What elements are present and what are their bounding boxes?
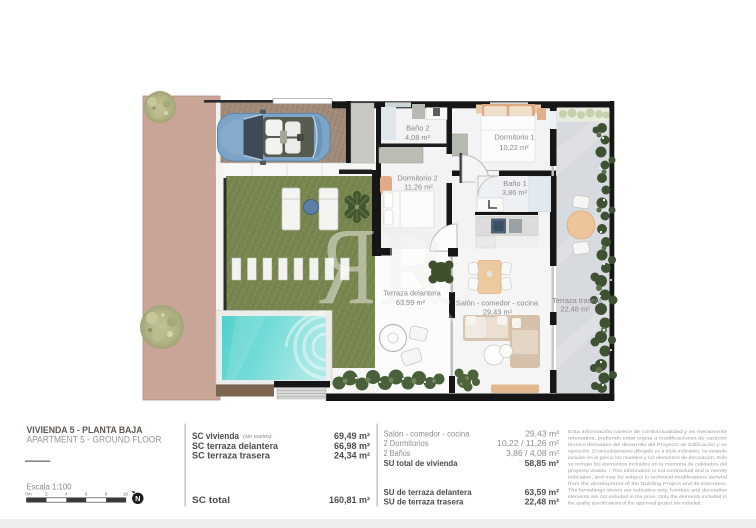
svg-text:Salón - comedor - cocina: Salón - comedor - cocina bbox=[384, 428, 470, 438]
svg-text:SC terraza delantera: SC terraza delantera bbox=[192, 441, 279, 451]
svg-text:Escala 1:100: Escala 1:100 bbox=[27, 483, 73, 492]
svg-text:2 Dormitorios: 2 Dormitorios bbox=[384, 438, 429, 448]
svg-text:Terraza delantera: Terraza delantera bbox=[383, 289, 441, 298]
svg-text:2 Baños: 2 Baños bbox=[384, 448, 411, 458]
svg-text:4,08 m²: 4,08 m² bbox=[405, 133, 431, 142]
svg-text:Dormitorio 1: Dormitorio 1 bbox=[494, 133, 534, 142]
svg-text:Baño 2: Baño 2 bbox=[406, 124, 429, 133]
svg-text:SU de terraza trasera: SU de terraza trasera bbox=[384, 496, 464, 506]
svg-text:63,59 m²: 63,59 m² bbox=[525, 487, 560, 497]
svg-text:29,43 m²: 29,43 m² bbox=[483, 308, 513, 317]
svg-text:SU total de vivienda: SU total de vivienda bbox=[384, 458, 458, 468]
svg-text:0m: 0m bbox=[25, 492, 32, 497]
svg-text:se incluye los elementos inclu: se incluye los elementos incluidos en la… bbox=[568, 462, 727, 468]
svg-text:22,48 m²: 22,48 m² bbox=[560, 305, 590, 314]
svg-text:(sin vuelos): (sin vuelos) bbox=[243, 434, 272, 440]
svg-text:Baño 1: Baño 1 bbox=[503, 179, 526, 188]
svg-text:incluido en el precio los mueb: incluido en el precio los muebles y los … bbox=[568, 455, 727, 461]
svg-text:10,22 / 11,26 m²: 10,22 / 11,26 m² bbox=[497, 438, 559, 448]
svg-text:from the development of the Bu: from the development of the Building Pro… bbox=[568, 481, 727, 487]
svg-text:63,59 m²: 63,59 m² bbox=[396, 298, 426, 307]
svg-text:elements are not included in t: elements are not included in the price. … bbox=[568, 494, 727, 500]
svg-text:SC terraza trasera: SC terraza trasera bbox=[192, 451, 271, 461]
svg-text:22,48 m²: 22,48 m² bbox=[525, 496, 560, 506]
svg-text:N: N bbox=[135, 494, 140, 503]
svg-text:58,85 m²: 58,85 m² bbox=[525, 458, 560, 468]
svg-text:6: 6 bbox=[85, 492, 88, 497]
svg-text:Esta información carece de con: Esta información carece de contractualid… bbox=[568, 429, 727, 435]
svg-text:10: 10 bbox=[123, 492, 129, 497]
svg-text:SC total: SC total bbox=[192, 495, 230, 505]
svg-text:Dormitorio 2: Dormitorio 2 bbox=[397, 174, 437, 183]
svg-text:ejecución. El amueblamiento di: ejecución. El amueblamiento dibujado es … bbox=[568, 449, 727, 455]
svg-text:SU de terraza delantera: SU de terraza delantera bbox=[384, 487, 472, 497]
svg-text:29,43 m²: 29,43 m² bbox=[525, 428, 559, 438]
svg-text:11,26 m²: 11,26 m² bbox=[404, 183, 433, 192]
svg-text:69,49 m²: 69,49 m² bbox=[334, 431, 370, 441]
svg-text:técnico derivadas del desarrol: técnico derivadas del desarrollo del Pro… bbox=[568, 442, 727, 448]
svg-text:APARTMENT 5 - GROUND FLOOR: APARTMENT 5 - GROUND FLOOR bbox=[27, 435, 162, 446]
svg-text:8: 8 bbox=[105, 492, 108, 497]
svg-text:160,81 m²: 160,81 m² bbox=[329, 495, 370, 505]
svg-text:indicative, and may be subject: indicative, and may be subject to techni… bbox=[568, 475, 727, 481]
svg-text:proyecto visado. / This inform: proyecto visado. / This information is n… bbox=[568, 468, 728, 474]
svg-text:Salón - comedor - cocina: Salón - comedor - cocina bbox=[456, 299, 539, 308]
svg-text:3,86 m²: 3,86 m² bbox=[502, 188, 528, 197]
svg-text:4: 4 bbox=[65, 492, 68, 497]
svg-text:24,34 m²: 24,34 m² bbox=[334, 451, 370, 461]
svg-text:The furnishings shown are indi: The furnishings shown are indicative onl… bbox=[568, 488, 727, 494]
svg-text:the quality specifications of: the quality specifications of the approv… bbox=[568, 501, 702, 507]
svg-text:SC vivienda: SC vivienda bbox=[192, 431, 240, 441]
svg-text:orientativa, pudiendo estar su: orientativa, pudiendo estar sujeta a mod… bbox=[568, 436, 727, 442]
svg-text:10,22 m²: 10,22 m² bbox=[499, 143, 529, 152]
svg-text:3,86 / 4,08 m²: 3,86 / 4,08 m² bbox=[506, 448, 559, 458]
svg-text:2: 2 bbox=[45, 492, 48, 497]
svg-text:66,98 m²: 66,98 m² bbox=[334, 441, 370, 451]
